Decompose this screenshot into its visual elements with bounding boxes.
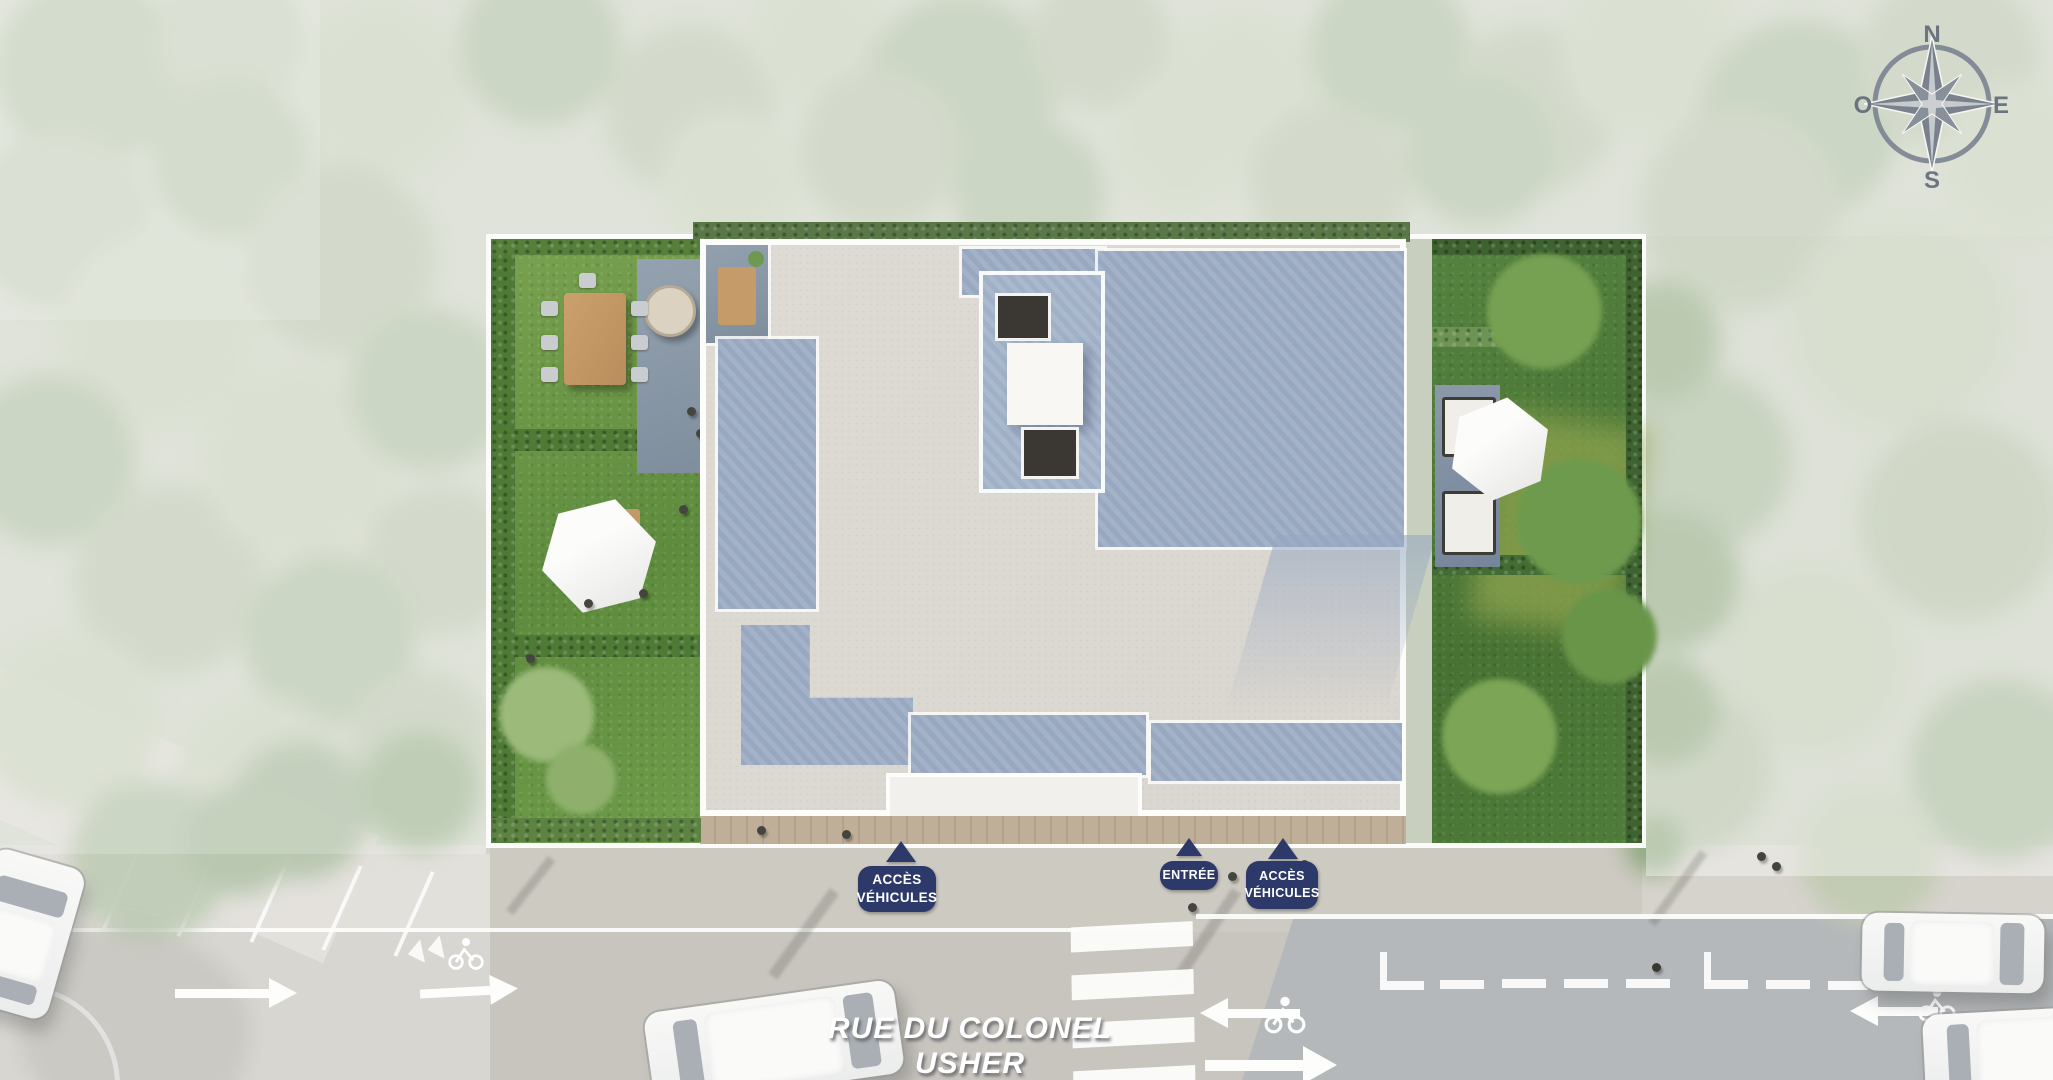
skylight xyxy=(1021,427,1079,479)
fade-overlay-corner xyxy=(0,0,320,320)
roof-access-box xyxy=(1007,343,1083,425)
person xyxy=(679,505,688,514)
person xyxy=(842,830,851,839)
building-roof xyxy=(700,239,1406,816)
left-garden xyxy=(491,239,703,843)
chair xyxy=(631,367,648,382)
person xyxy=(1228,872,1237,881)
entrance-recess xyxy=(886,773,1142,822)
lane-dash xyxy=(1626,979,1670,988)
hedge-front xyxy=(491,818,701,842)
garden-tree xyxy=(546,744,616,814)
chair xyxy=(541,335,558,350)
crosswalk-stripe xyxy=(1071,969,1193,1000)
bicycle-icon xyxy=(446,932,486,974)
person xyxy=(757,826,766,835)
lane-dash xyxy=(1564,979,1608,988)
road-arrow-right xyxy=(1205,1046,1337,1080)
garden-tree xyxy=(1487,254,1602,369)
marker-label: ENTRÉE xyxy=(1162,867,1215,884)
hedge xyxy=(491,635,703,657)
street-name-line1: RUE DU COLONEL xyxy=(810,1012,1130,1047)
hedge xyxy=(491,239,515,843)
entrance-marker: ENTRÉE xyxy=(1160,861,1218,890)
access-vehicles-arrow-right xyxy=(1268,838,1298,859)
chair xyxy=(631,301,648,316)
right-garden xyxy=(1432,239,1642,843)
marker-label: ACCÈS xyxy=(1259,868,1305,885)
access-vehicles-arrow-left xyxy=(886,841,916,862)
bicycle-icon xyxy=(1262,990,1308,1038)
roof-deck xyxy=(911,715,1146,775)
person xyxy=(584,599,593,608)
hedge xyxy=(491,429,649,451)
roof-deck xyxy=(741,625,913,765)
round-table xyxy=(644,285,696,337)
lane-tick xyxy=(1704,952,1711,982)
person xyxy=(526,654,535,663)
compass-letter-south: S xyxy=(1924,167,1940,192)
lane-dash xyxy=(1380,981,1424,990)
compass-letter-east: E xyxy=(1993,92,2009,119)
car xyxy=(1861,912,2044,993)
compass-letter-north: N xyxy=(1923,21,1940,48)
plant xyxy=(748,251,764,267)
hedge xyxy=(1432,239,1642,255)
lane-tick xyxy=(1380,952,1387,982)
hedge xyxy=(491,239,703,255)
bench xyxy=(1442,491,1496,555)
marker-label: ACCÈS xyxy=(872,871,921,889)
compass-rose: N E S O xyxy=(1844,16,2020,192)
lane-dash xyxy=(1828,981,1868,990)
chair xyxy=(631,335,648,350)
chair xyxy=(579,273,596,288)
rooftop-structure xyxy=(979,271,1105,493)
entrance-arrow xyxy=(1176,838,1202,856)
access-vehicles-marker-right: ACCÈS VÉHICULES xyxy=(1246,861,1318,909)
lane-dash xyxy=(1502,979,1546,988)
person xyxy=(1772,862,1781,871)
lane-dash xyxy=(1440,980,1484,989)
person xyxy=(1757,852,1766,861)
skylight xyxy=(995,293,1051,341)
street-name-label: RUE DU COLONEL USHER xyxy=(810,1012,1130,1080)
car xyxy=(1922,1005,2053,1080)
deck-walkway xyxy=(700,816,1406,844)
site-plan-rendering: ACCÈS VÉHICULES ENTRÉE ACCÈS VÉHICULES R… xyxy=(0,0,2053,1080)
garden-tree xyxy=(1442,679,1557,794)
chair xyxy=(541,367,558,382)
road-arrow-right xyxy=(419,973,518,1008)
marker-label: VÉHICULES xyxy=(857,889,938,907)
marker-label: VÉHICULES xyxy=(1244,885,1319,902)
road-arrow-right xyxy=(175,978,297,1008)
fade-overlay-left xyxy=(0,236,486,854)
lane-dash xyxy=(1766,980,1810,989)
person xyxy=(687,407,696,416)
roof-shadow xyxy=(1226,535,1436,710)
fade-overlay-right xyxy=(1646,236,2053,876)
person xyxy=(1188,903,1197,912)
access-vehicles-marker-left: ACCÈS VÉHICULES xyxy=(858,866,936,912)
dining-table xyxy=(564,293,626,385)
roof-deck xyxy=(1151,723,1402,781)
parasol xyxy=(526,483,672,629)
cyclist xyxy=(1652,963,1661,972)
roof-terrace xyxy=(706,245,768,343)
garden-tree xyxy=(1562,589,1657,684)
crosswalk-stripe xyxy=(1071,921,1193,952)
chair xyxy=(541,301,558,316)
wooden-table xyxy=(718,267,756,325)
lane-dash xyxy=(1704,980,1748,989)
roof-deck xyxy=(718,339,816,609)
street-name-line2: USHER xyxy=(810,1047,1130,1080)
roof-deck xyxy=(1098,251,1404,547)
person xyxy=(639,589,648,598)
compass-letter-west: O xyxy=(1854,92,1873,119)
